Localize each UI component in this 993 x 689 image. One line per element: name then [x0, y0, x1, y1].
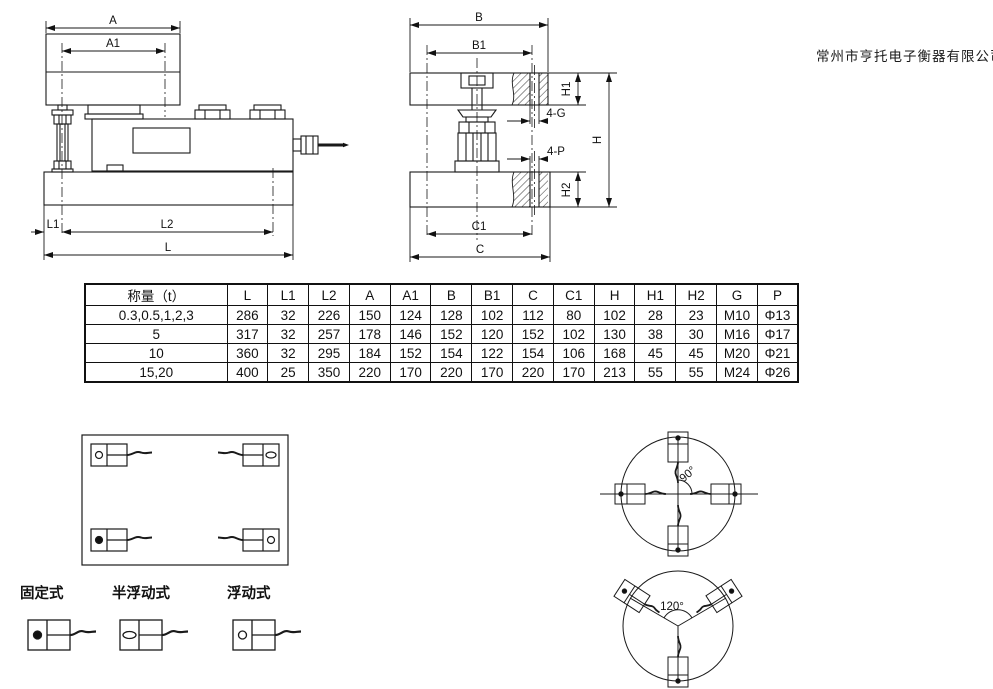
table-row: 10360322951841521541221541061684545M20Φ2…	[85, 344, 798, 363]
dim-label-a1: A1	[106, 38, 120, 50]
angle-label-90: 90°	[678, 465, 699, 485]
dim-label-a: A	[109, 15, 117, 27]
dim-4g	[507, 105, 547, 124]
arrangement-120-diagram: 120°	[594, 562, 766, 689]
col-header: L2	[309, 284, 350, 306]
dimension-cell: M20	[717, 344, 758, 363]
dimension-cell: 152	[390, 344, 431, 363]
spec-table-body: 称量（t）LL1L2AA1BB1CC1HH1H2GP0.3,0.5,1,2,32…	[85, 284, 798, 382]
dimension-cell: 32	[268, 344, 309, 363]
dimension-cell: Φ13	[757, 306, 798, 325]
cable-gland	[293, 136, 349, 154]
load-cell-icon	[218, 444, 279, 466]
dimension-cell: 28	[635, 306, 676, 325]
dim-label-c: C	[476, 244, 484, 256]
load-cell-icon	[614, 579, 664, 621]
load-cell-icon	[692, 579, 742, 621]
dimension-cell: 25	[268, 363, 309, 383]
col-header: C	[513, 284, 554, 306]
dimension-cell: Φ26	[757, 363, 798, 383]
side-bottom-plate	[44, 172, 293, 205]
dimension-cell: 112	[513, 306, 554, 325]
capacity-cell: 15,20	[85, 363, 227, 383]
nameplate	[133, 128, 190, 153]
dimension-cell: 55	[676, 363, 717, 383]
table-header-row: 称量（t）LL1L2AA1BB1CC1HH1H2GP	[85, 284, 798, 306]
four-cell-layout-diagram	[75, 430, 305, 570]
dimension-cell: 154	[513, 344, 554, 363]
dimension-cell: 220	[431, 363, 472, 383]
table-row: 5317322571781461521201521021303830M16Φ17	[85, 325, 798, 344]
load-cell-body	[92, 119, 293, 171]
fixed-mount-icon	[28, 620, 96, 650]
col-header: B1	[472, 284, 513, 306]
dimension-cell: 170	[472, 363, 513, 383]
dimension-cell: 102	[594, 306, 635, 325]
table-row: 0.3,0.5,1,2,3286322261501241281021128010…	[85, 306, 798, 325]
col-header: P	[757, 284, 798, 306]
dimension-cell: 168	[594, 344, 635, 363]
col-header: H2	[676, 284, 717, 306]
dimension-cell: 32	[268, 306, 309, 325]
cable-tip	[343, 143, 349, 147]
arrangement-90-diagram: 90°	[594, 424, 766, 564]
mount-type-label-semi-floating: 半浮动式	[112, 582, 170, 603]
dimension-cell: 170	[553, 363, 594, 383]
mount-type-icons	[10, 608, 320, 663]
dimension-cell: 184	[349, 344, 390, 363]
spec-sheet-page: A A1 L1 L2 L	[0, 0, 993, 689]
semi-floating-mount-icon	[120, 620, 188, 650]
col-header: A	[349, 284, 390, 306]
dimension-cell: 257	[309, 325, 350, 344]
dimension-cell: 178	[349, 325, 390, 344]
dimension-cell: 80	[553, 306, 594, 325]
dim-label-4g: 4-G	[546, 108, 565, 120]
dimension-cell: M16	[717, 325, 758, 344]
dim-label-4p: 4-P	[547, 146, 565, 158]
capacity-cell: 0.3,0.5,1,2,3	[85, 306, 227, 325]
dimension-cell: M10	[717, 306, 758, 325]
table-row: 15,20400253502201702201702201702135555M2…	[85, 363, 798, 383]
col-header: H1	[635, 284, 676, 306]
dimension-cell: 220	[513, 363, 554, 383]
dim-label-c1: C1	[472, 221, 487, 233]
capacity-cell: 10	[85, 344, 227, 363]
dimension-cell: 154	[431, 344, 472, 363]
dimension-cell: 226	[309, 306, 350, 325]
dimension-cell: Φ17	[757, 325, 798, 344]
dim-label-b1: B1	[472, 40, 486, 52]
dimension-cell: Φ21	[757, 344, 798, 363]
dimension-cell: 170	[390, 363, 431, 383]
dim-h-group	[548, 73, 617, 207]
dimension-cell: 152	[431, 325, 472, 344]
col-header: C1	[553, 284, 594, 306]
spec-table: 称量（t）LL1L2AA1BB1CC1HH1H2GP0.3,0.5,1,2,32…	[84, 283, 799, 383]
dimension-cell: 146	[390, 325, 431, 344]
dimension-cell: 45	[676, 344, 717, 363]
floating-mount-icon	[233, 620, 301, 650]
dimension-cell: 130	[594, 325, 635, 344]
load-cell-icon	[91, 444, 152, 466]
col-header: G	[717, 284, 758, 306]
col-header: A1	[390, 284, 431, 306]
dim-label-b: B	[475, 12, 483, 24]
dim-4p	[507, 156, 547, 172]
dimension-cell: 38	[635, 325, 676, 344]
capacity-cell: 5	[85, 325, 227, 344]
dimension-cell: M24	[717, 363, 758, 383]
dimension-cell: 317	[227, 325, 268, 344]
col-header: B	[431, 284, 472, 306]
dimension-cell: 128	[431, 306, 472, 325]
dimension-cell: 152	[513, 325, 554, 344]
mounting-bolts	[195, 105, 285, 119]
dim-label-h1: H1	[561, 82, 573, 97]
dimension-cell: 350	[309, 363, 350, 383]
mount-type-label-fixed: 固定式	[20, 582, 64, 603]
dimension-cell: 360	[227, 344, 268, 363]
col-header: 称量（t）	[85, 284, 227, 306]
dimension-cell: 220	[349, 363, 390, 383]
dimension-cell: 124	[390, 306, 431, 325]
dimension-cell: 55	[635, 363, 676, 383]
dimension-cell: 295	[309, 344, 350, 363]
load-cell-icon	[91, 529, 152, 551]
dimension-cell: 32	[268, 325, 309, 344]
mount-type-label-floating: 浮动式	[227, 582, 271, 603]
angle-label-120: 120°	[660, 601, 684, 613]
dimension-cell: 213	[594, 363, 635, 383]
dim-label-l2: L2	[161, 219, 174, 231]
dimension-cell: 400	[227, 363, 268, 383]
dimension-cell: 120	[472, 325, 513, 344]
dim-label-h: H	[592, 136, 604, 144]
dimension-cell: 106	[553, 344, 594, 363]
dimension-cell: 45	[635, 344, 676, 363]
dim-l1-l2-l	[31, 205, 293, 260]
anchor-bolt	[52, 105, 73, 172]
dim-label-l: L	[165, 242, 172, 254]
dimension-cell: 286	[227, 306, 268, 325]
load-cell-icon	[218, 529, 279, 551]
side-view-drawing: A A1 L1 L2 L	[25, 8, 357, 260]
col-header: H	[594, 284, 635, 306]
dimension-cell: 150	[349, 306, 390, 325]
dim-label-h2: H2	[561, 183, 573, 198]
dimension-cell: 23	[676, 306, 717, 325]
front-view-drawing: B B1 4-G 4-P H1 H2 H C1 C	[395, 8, 630, 264]
dimension-cell: 102	[472, 306, 513, 325]
dimension-cell: 30	[676, 325, 717, 344]
load-point-support	[85, 105, 143, 119]
col-header: L1	[268, 284, 309, 306]
col-header: L	[227, 284, 268, 306]
dim-label-l1: L1	[47, 219, 60, 231]
dimension-cell: 122	[472, 344, 513, 363]
company-name: 常州市亨托电子衡器有限公司	[816, 45, 993, 65]
dimension-cell: 102	[553, 325, 594, 344]
